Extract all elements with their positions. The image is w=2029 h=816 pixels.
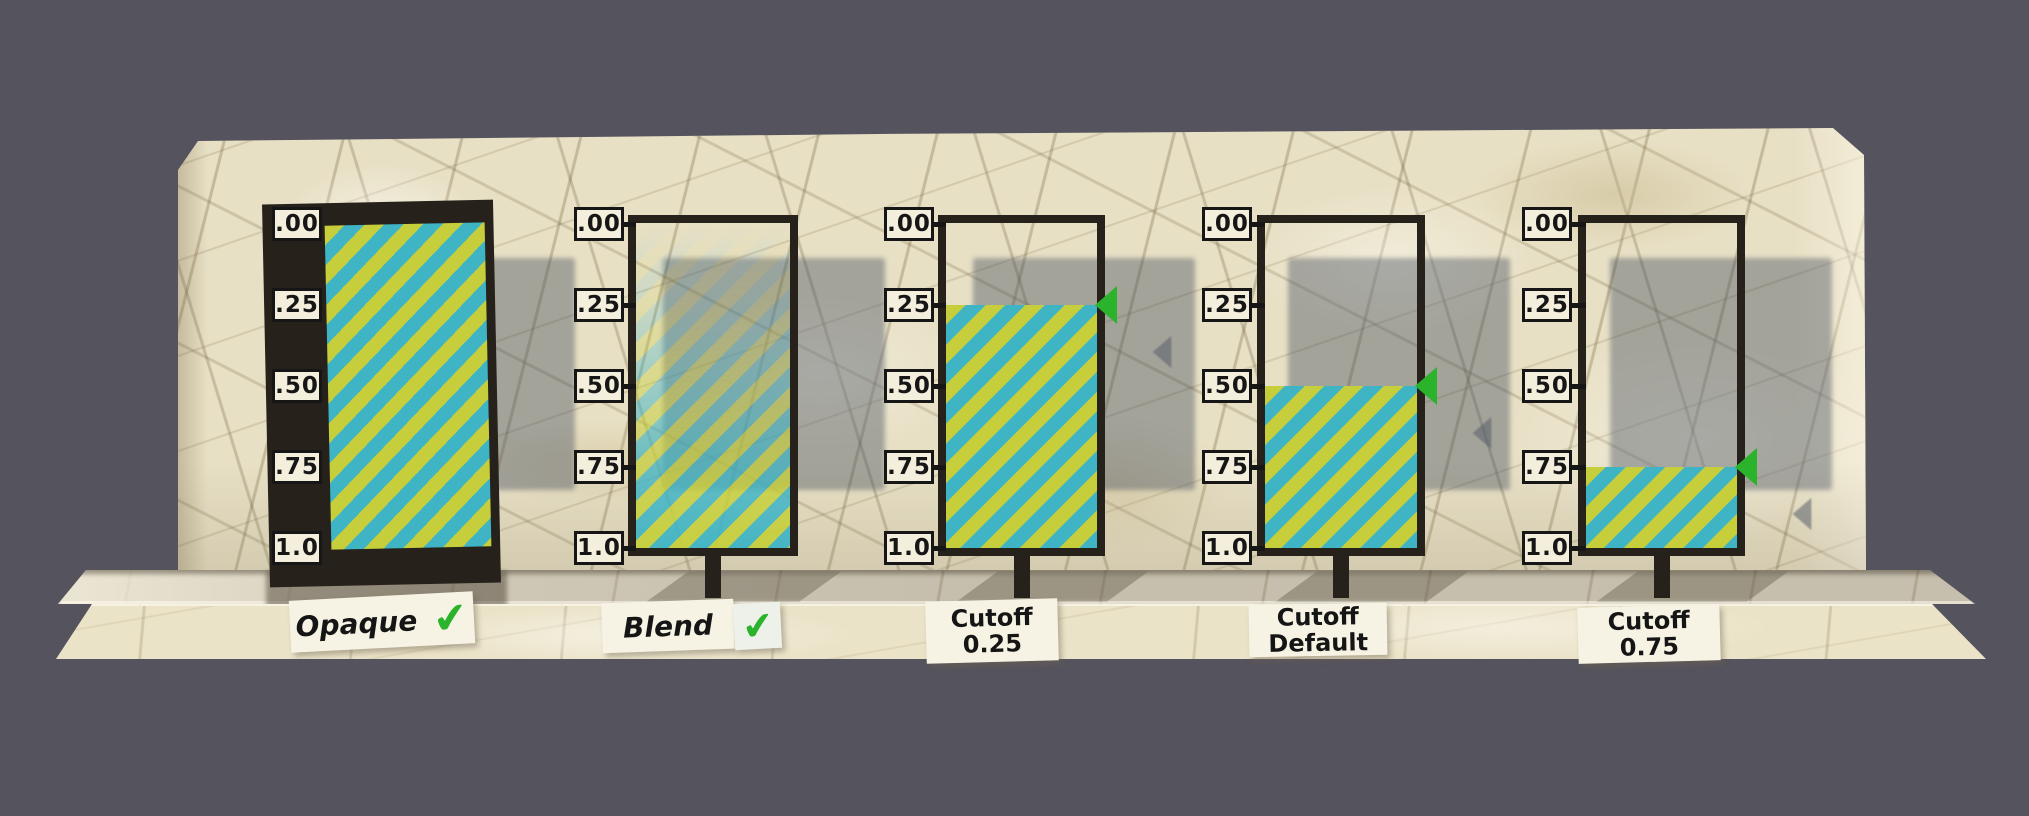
- marble-wall: [178, 128, 1866, 572]
- alpha-modes-demo-scene: .00.25.50.751.0.00.25.50.751.0.00.25.50.…: [0, 0, 2029, 816]
- wall-bottom-shading: [178, 462, 1866, 572]
- base-front-face: [52, 604, 1990, 659]
- base-ledge: [58, 570, 1975, 604]
